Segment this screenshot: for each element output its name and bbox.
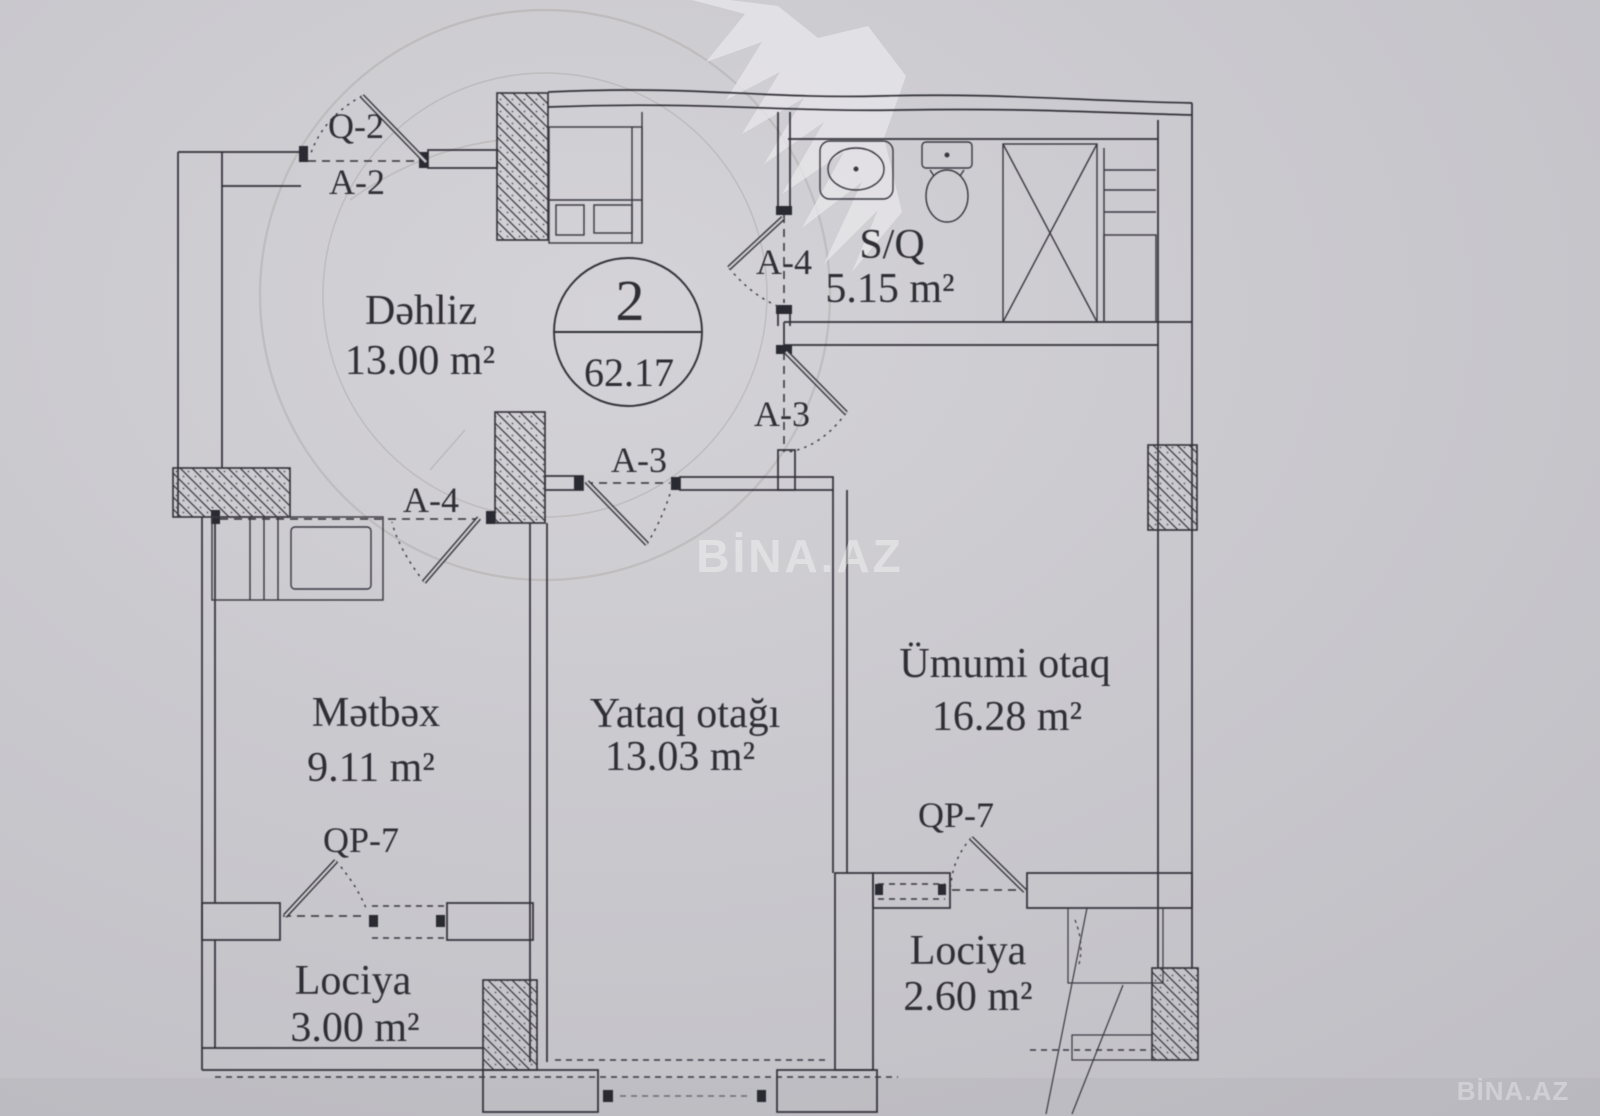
room-area-sq: 5.15 m² [825,266,954,312]
scanned-floor-plan: 2 62.17 Q-2 A-2 A-4 A-3 A-3 A-4 QP-7 QP-… [0,0,1600,1116]
unit-total-area: 62.17 [584,350,674,395]
paper-bottom-shade [0,1078,1600,1116]
unit-badge: 2 62.17 [554,258,702,406]
door-label-a4-bath: A-4 [756,242,812,282]
column-left [173,468,290,517]
door-label-a4-kitchen: A-4 [403,480,459,520]
door-label-qp7-right: QP-7 [918,795,994,835]
room-label-sq: S/Q [859,222,924,268]
room-label-dehliz: Dəhliz [365,288,477,334]
room-label-yataq: Yataq otağı [590,691,781,737]
door-label-a3-bedroom: A-3 [611,440,667,480]
room-label-umumi: Ümumi otaq [899,641,1110,687]
door-label-a2: A-2 [329,162,385,202]
watermark-center: BİNA.AZ [696,530,904,582]
door-label-q2: Q-2 [328,106,384,146]
room-label-lociya-left: Lociya [295,958,412,1004]
column-bottom-right [1152,968,1198,1060]
room-area-umumi: 16.28 m² [932,694,1082,740]
room-area-lociya-left: 3.00 m² [290,1005,419,1051]
unit-number: 2 [616,268,645,333]
column-right [1148,445,1197,530]
room-label-metbex: Mətbəx [312,690,440,736]
room-area-yataq: 13.03 m² [605,734,755,780]
column-top [497,93,548,240]
door-label-a3-living: A-3 [754,394,810,434]
watermark-corner: BİNA.AZ [1457,1076,1569,1106]
column-center [495,412,545,523]
room-area-dehliz: 13.00 m² [345,338,495,384]
room-label-lociya-right: Lociya [910,928,1027,974]
floor-plan-canvas: 2 62.17 Q-2 A-2 A-4 A-3 A-3 A-4 QP-7 QP-… [0,0,1600,1116]
room-area-metbex: 9.11 m² [307,745,435,791]
column-bottom-left [483,980,537,1070]
door-label-qp7-left: QP-7 [323,820,399,860]
room-area-lociya-right: 2.60 m² [903,974,1032,1020]
